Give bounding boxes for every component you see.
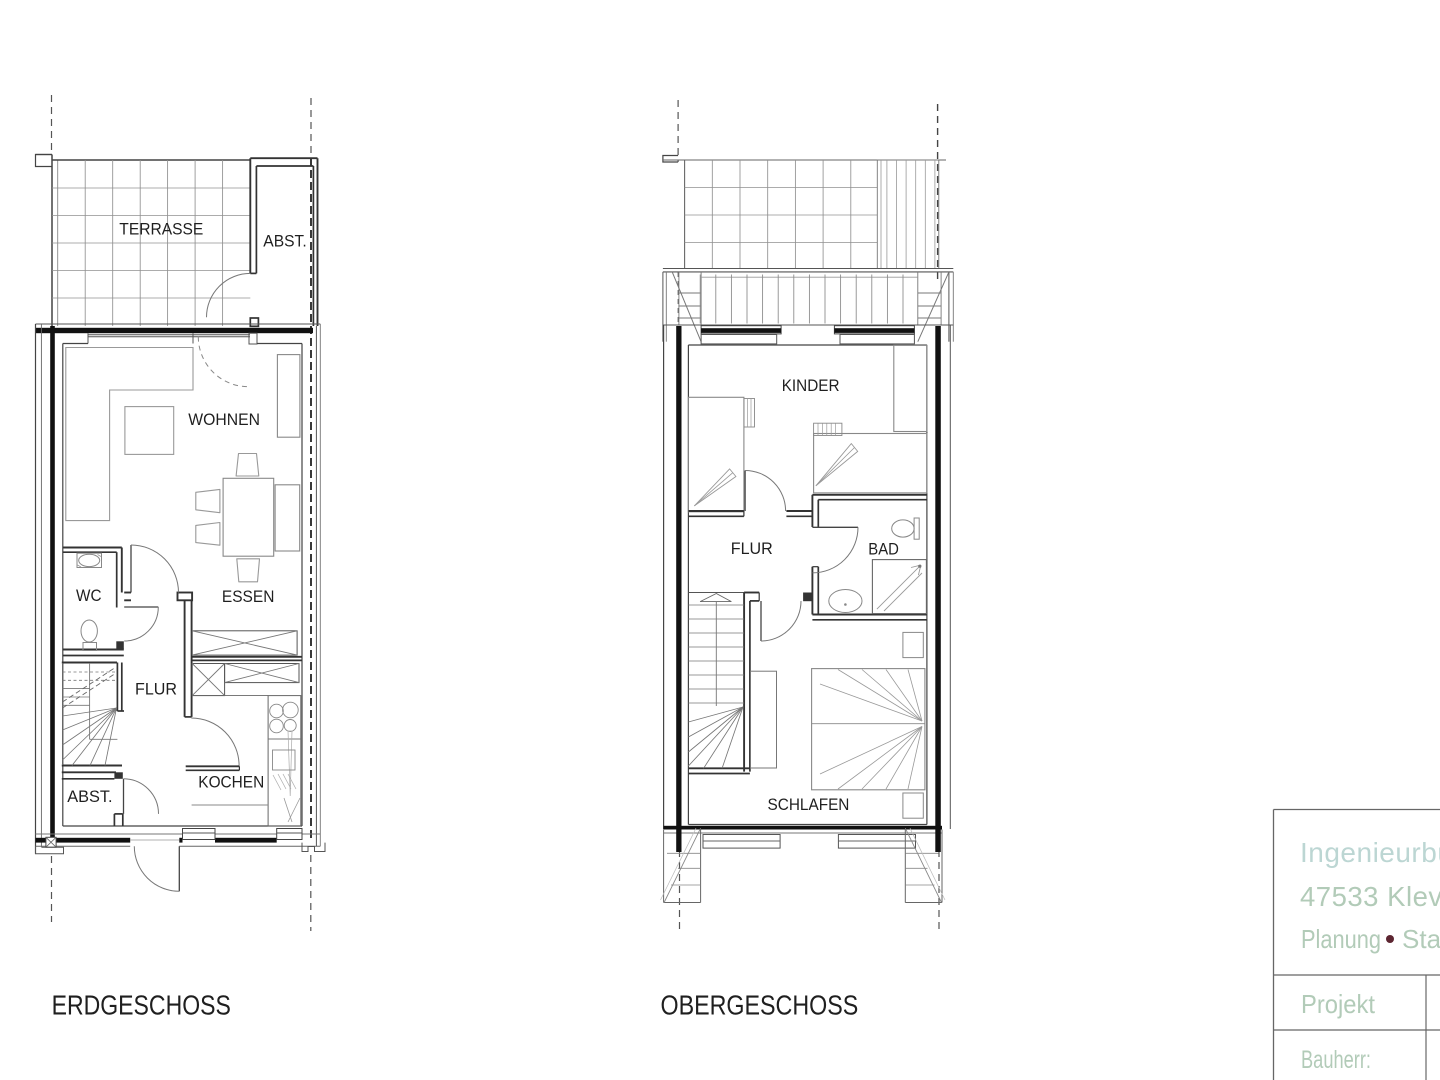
svg-text:ABST.: ABST. xyxy=(67,787,112,806)
svg-text:TERRASSE: TERRASSE xyxy=(119,219,203,238)
svg-text:ABST.: ABST. xyxy=(263,231,306,250)
svg-text:SCHLAFEN: SCHLAFEN xyxy=(768,795,850,814)
svg-text:47533 Kleve - K: 47533 Kleve - K xyxy=(1300,881,1440,912)
svg-text:OBERGESCHOSS: OBERGESCHOSS xyxy=(661,990,859,1021)
svg-text:FLUR: FLUR xyxy=(731,539,773,558)
svg-text:KINDER: KINDER xyxy=(782,376,840,395)
svg-text:WOHNEN: WOHNEN xyxy=(188,410,260,429)
svg-text:ERDGESCHOSS: ERDGESCHOSS xyxy=(52,990,231,1021)
svg-text:Sta: Sta xyxy=(1402,924,1440,954)
svg-text:Projekt: Projekt xyxy=(1301,989,1376,1019)
svg-text:Ingenieurbüro K: Ingenieurbüro K xyxy=(1300,837,1440,868)
svg-text:Bauherr:: Bauherr: xyxy=(1301,1046,1371,1074)
svg-text:ESSEN: ESSEN xyxy=(222,587,275,606)
svg-text:KOCHEN: KOCHEN xyxy=(198,773,264,792)
svg-text:FLUR: FLUR xyxy=(135,679,177,698)
svg-text:WC: WC xyxy=(76,586,102,605)
svg-text:BAD: BAD xyxy=(868,540,899,559)
svg-text:Planung: Planung xyxy=(1301,924,1381,954)
